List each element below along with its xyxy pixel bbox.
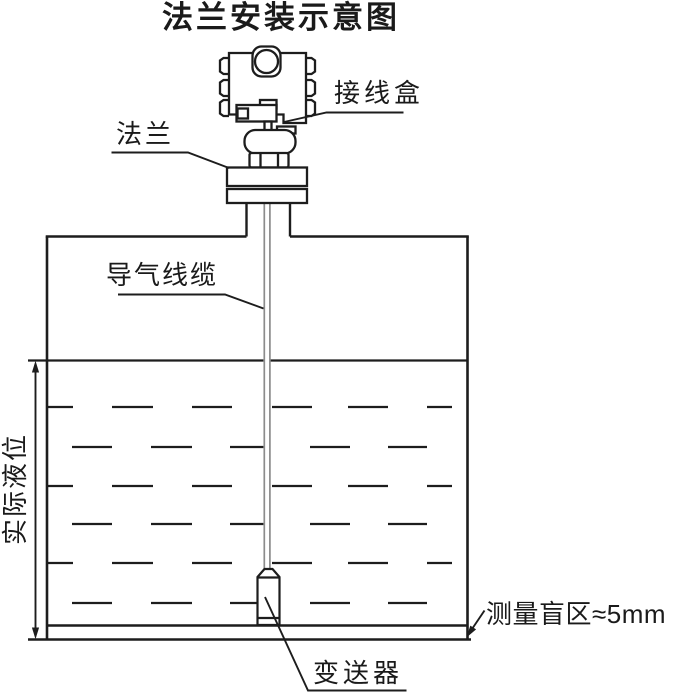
vent-cable-line bbox=[263, 202, 270, 570]
coupling bbox=[245, 130, 296, 154]
vent-cable-label: 导气线缆 bbox=[106, 262, 218, 289]
flange-installation-diagram: 法兰安装示意图 接线盒 法兰 导气线缆 实际液位 测量盲区≈5mm 变送器 bbox=[0, 0, 700, 700]
terminal-block-inner bbox=[238, 109, 249, 119]
line-art-root bbox=[28, 47, 485, 691]
probe bbox=[258, 569, 280, 625]
level-dimension-arrow bbox=[32, 361, 39, 639]
diagram-title: 法兰安装示意图 bbox=[81, 2, 481, 35]
flange-label: 法兰 bbox=[116, 121, 174, 148]
transmitter-label: 变送器 bbox=[313, 660, 403, 687]
right-clamp-tabs bbox=[306, 58, 315, 116]
liquid-dashes bbox=[48, 407, 452, 603]
junction-box-label: 接线盒 bbox=[334, 80, 424, 107]
left-clamp-tabs bbox=[220, 58, 229, 116]
blind-zone-label: 测量盲区≈5mm bbox=[486, 601, 666, 628]
transmitter-head bbox=[220, 47, 315, 204]
vent-cable-leader bbox=[118, 295, 264, 309]
tank bbox=[28, 237, 471, 640]
actual-level-label: 实际液位 bbox=[2, 414, 32, 564]
hex-nut bbox=[250, 153, 289, 168]
flange-leader bbox=[112, 153, 230, 169]
flange-plate-top bbox=[227, 168, 307, 187]
display-dome bbox=[255, 50, 278, 73]
flange-plate-bottom bbox=[227, 189, 307, 203]
